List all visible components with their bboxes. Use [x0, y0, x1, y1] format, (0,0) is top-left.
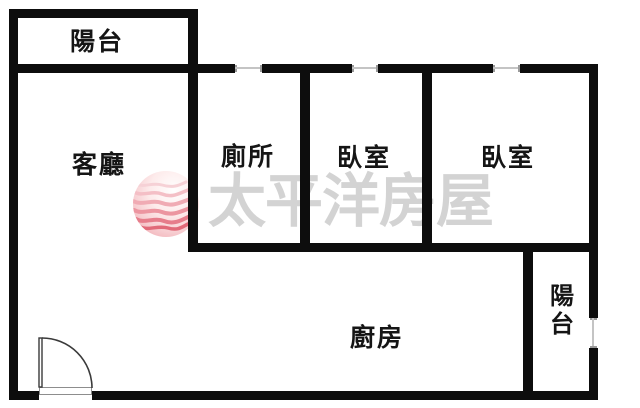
window-right-balcony	[589, 318, 598, 348]
wall-top-segment-3	[378, 64, 493, 73]
window-top-1	[235, 64, 262, 73]
wall-balcony-top	[9, 9, 198, 18]
wall-top-segment-1	[9, 64, 235, 73]
label-balcony-top: 陽台	[70, 22, 124, 58]
label-balcony-right: 陽台	[542, 283, 577, 339]
window-top-3	[493, 64, 520, 73]
window-top-2	[352, 64, 378, 73]
watermark-brand-text: 太平洋房屋	[208, 172, 493, 232]
label-bedroom-right: 臥室	[481, 138, 535, 174]
wall-top-segment-4	[520, 64, 598, 73]
floor-plan: 太平洋房屋 陽台 客廳 廁所 臥室 臥室 廚房 陽台	[0, 0, 640, 408]
wall-balcony-toilet-left	[188, 9, 198, 252]
wall-toilet-bedroom	[300, 64, 310, 252]
wall-kitchen-balcony	[523, 243, 533, 400]
label-bedroom-left: 臥室	[337, 138, 391, 174]
label-kitchen: 廚房	[350, 318, 404, 354]
door-swing-icon	[37, 335, 95, 393]
wall-middle-horizontal	[188, 243, 598, 252]
label-living-room: 客廳	[72, 145, 126, 181]
wall-bottom-left-stub	[9, 391, 39, 400]
label-toilet: 廁所	[221, 137, 275, 173]
wall-bedroom-bedroom	[422, 64, 432, 252]
wall-right-upper	[589, 64, 598, 318]
